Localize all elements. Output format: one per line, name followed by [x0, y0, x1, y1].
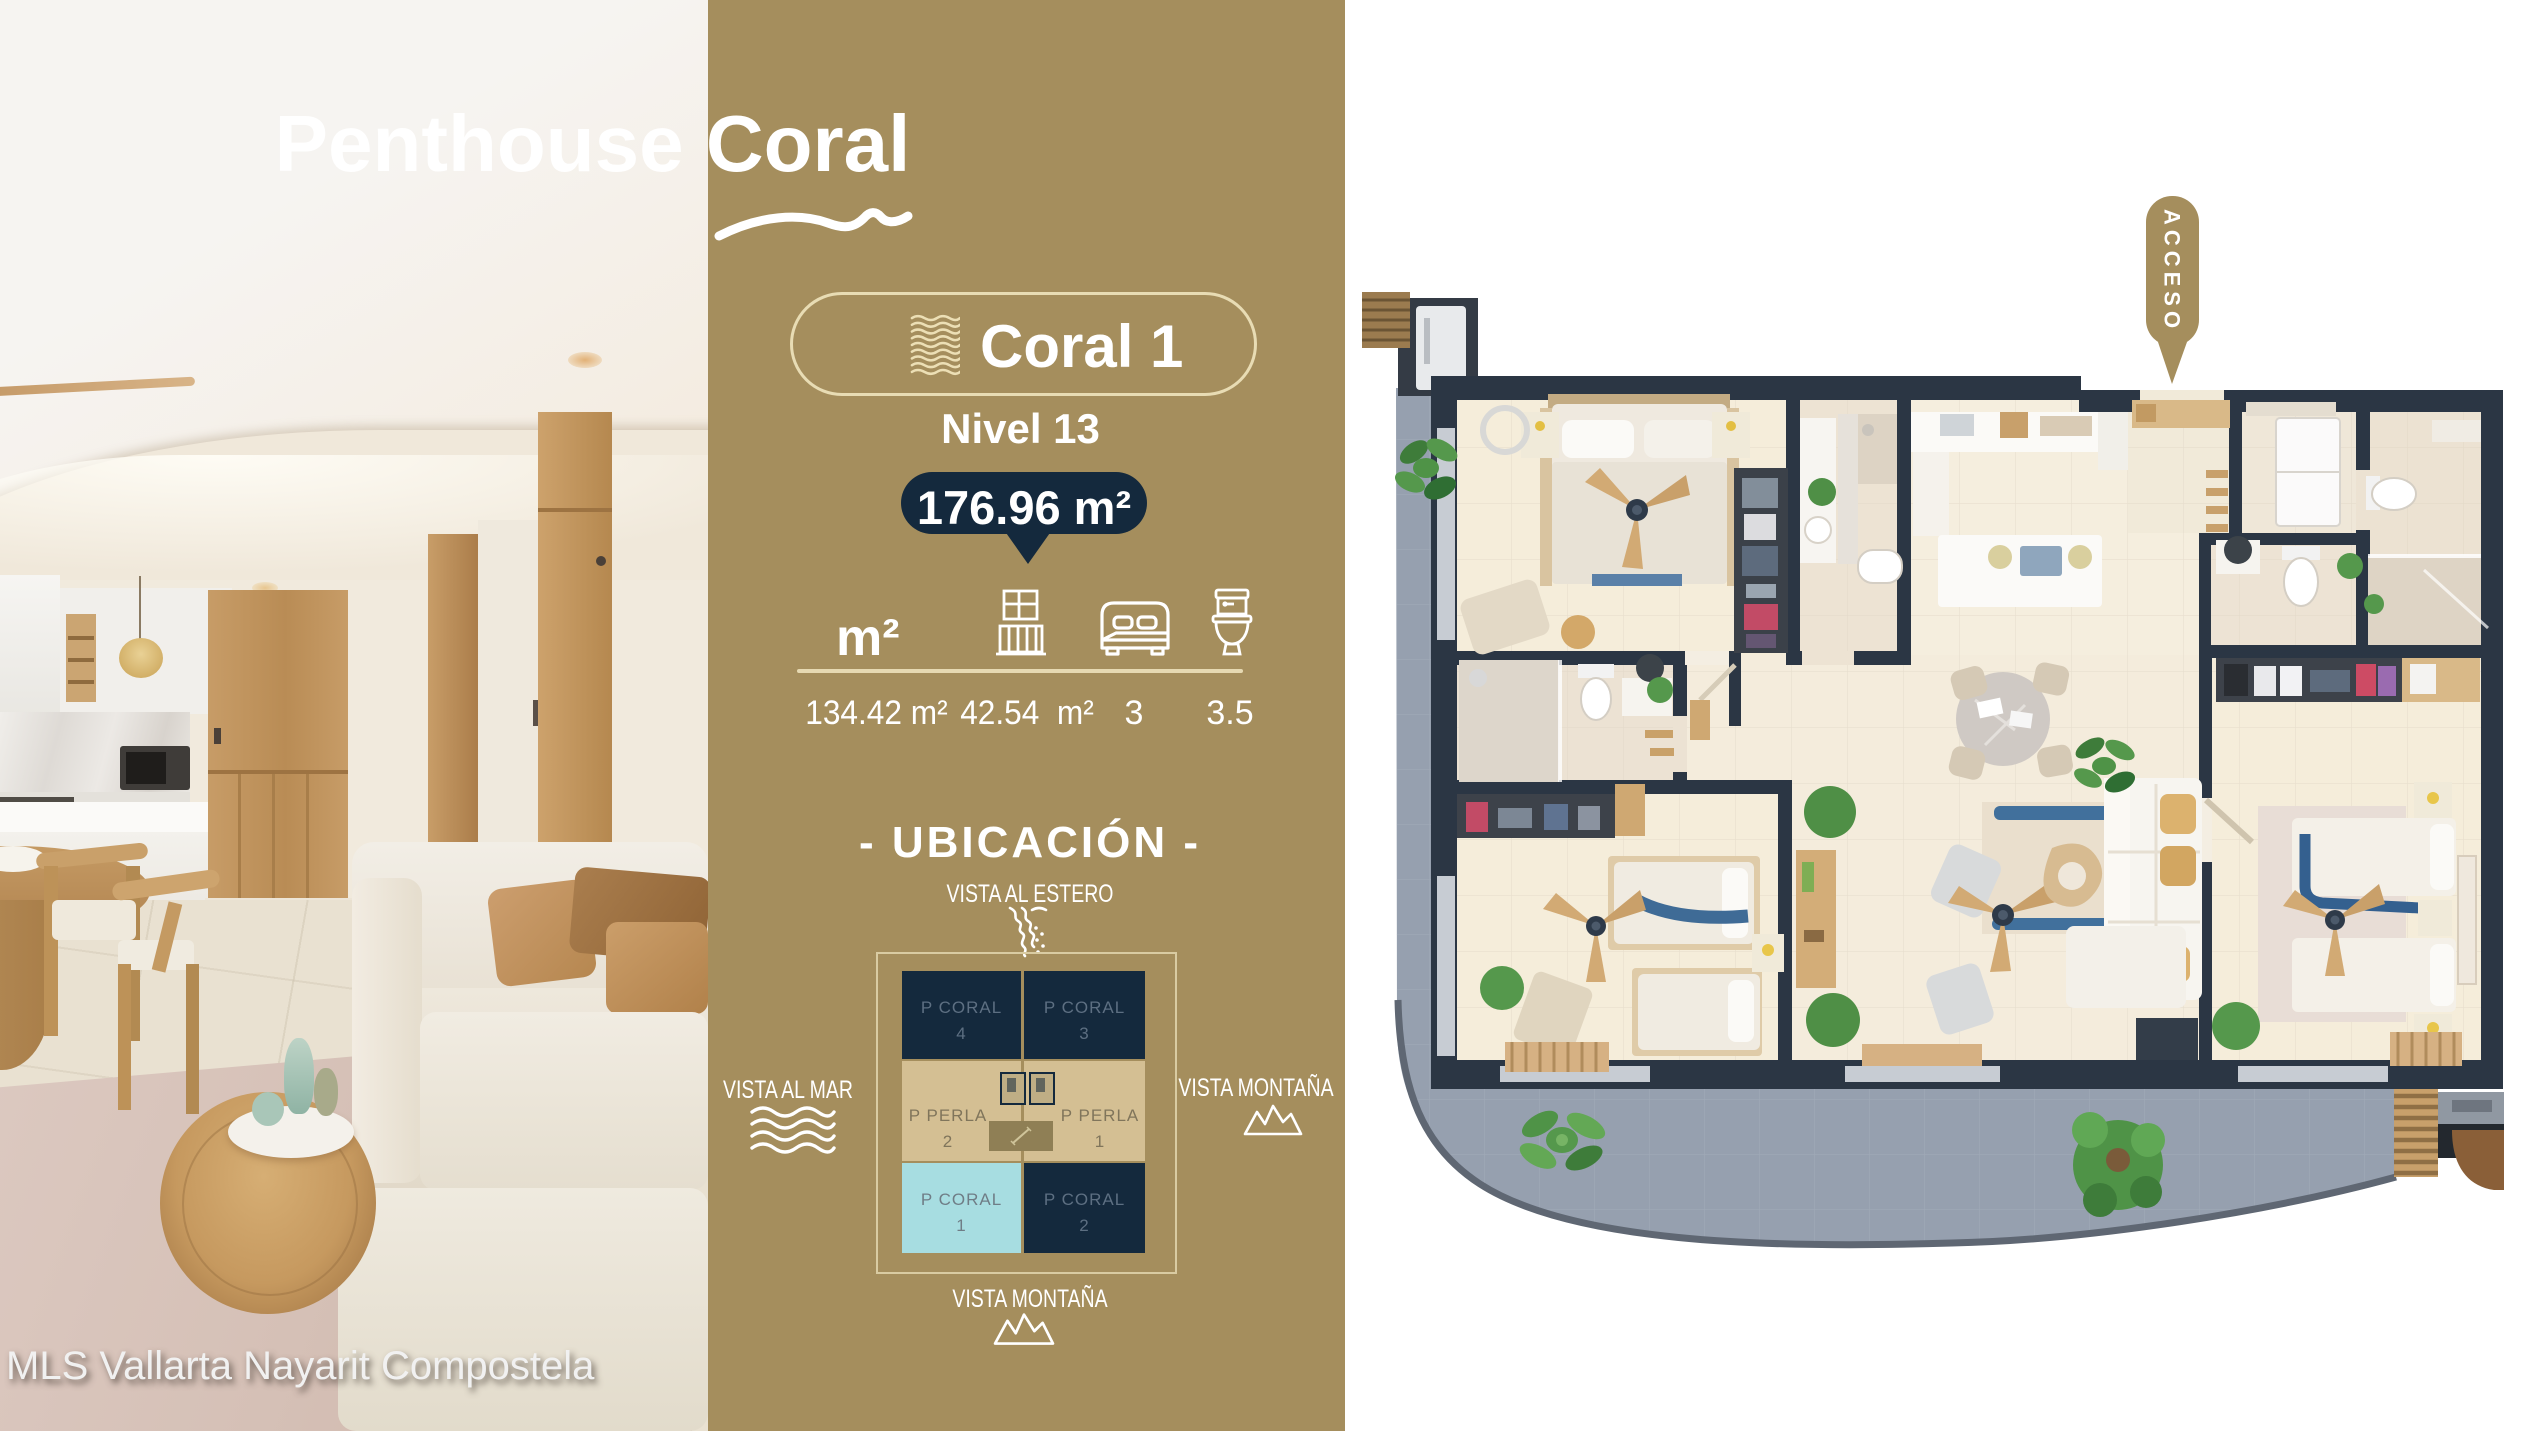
svg-text:ACCESO: ACCESO	[2160, 209, 2185, 333]
